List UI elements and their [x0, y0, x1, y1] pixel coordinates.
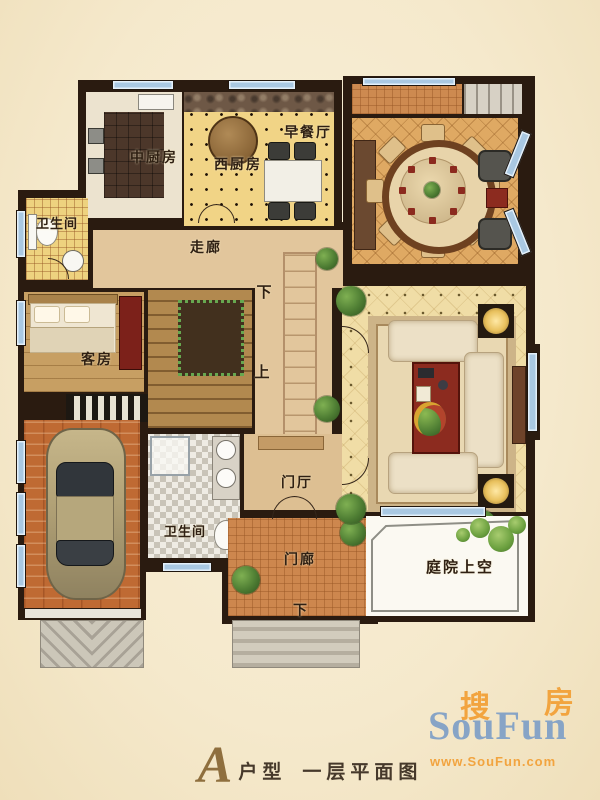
foyer-rug: [258, 436, 324, 450]
lamp-table: [478, 474, 514, 508]
place-setting: [458, 187, 465, 194]
driveway-chevron: [41, 621, 92, 667]
window: [16, 492, 26, 536]
table-item: [416, 386, 431, 402]
flower-bouquet: [414, 402, 446, 436]
plant: [340, 520, 366, 546]
breakfast-chair: [294, 202, 316, 220]
label-guest-room: 客房: [67, 349, 127, 369]
label-stair-down: 下: [252, 281, 276, 302]
place-setting: [450, 208, 457, 215]
car-rear-window: [56, 540, 114, 566]
sink-icon: [216, 468, 236, 488]
shower: [150, 436, 190, 476]
car-windshield: [56, 462, 114, 498]
label-breakfast: 早餐厅: [268, 122, 348, 142]
stair-runner: [178, 300, 244, 376]
plant: [314, 396, 340, 422]
breakfast-chair: [268, 202, 290, 220]
window: [228, 80, 296, 90]
plant: [336, 494, 366, 524]
kitchen-counter: [184, 92, 334, 112]
window: [16, 210, 26, 258]
tree: [456, 528, 470, 542]
place-setting: [408, 208, 415, 215]
window: [380, 506, 486, 517]
tree: [470, 518, 490, 538]
closet-strip: [66, 394, 148, 422]
label-foyer: 门厅: [267, 472, 327, 492]
sofa-right: [464, 352, 504, 468]
driveway-chevron: [92, 621, 143, 667]
centerpiece-plant: [424, 182, 440, 198]
side-table: [486, 188, 508, 208]
sofa-bottom: [388, 452, 478, 494]
window: [362, 77, 456, 86]
floor-plan-page: 中厨房 西厨房 早餐厅 卫生间 走廊 下 上 客房 卫生间 门厅 门廊 下 庭院…: [0, 0, 600, 800]
caption-floor-name: 一层平面图: [302, 757, 422, 784]
window: [16, 544, 26, 588]
stove-icon: [88, 158, 104, 174]
window: [527, 352, 538, 432]
terrace-stairs: [464, 84, 522, 114]
label-western-kitchen: 西厨房: [196, 154, 280, 174]
label-bath-main: 卫生间: [150, 521, 220, 540]
kitchen-sink-icon: [138, 94, 174, 110]
label-stair-up: 上: [250, 361, 274, 382]
garage-door: [24, 608, 142, 619]
label-chinese-kitchen: 中厨房: [112, 147, 196, 167]
label-bath-top: 卫生间: [26, 213, 88, 232]
label-corridor: 走廊: [176, 237, 236, 257]
lamp-table: [478, 304, 514, 338]
pillow: [64, 306, 90, 323]
porch-steps: [232, 620, 360, 668]
place-setting: [399, 187, 406, 194]
label-courtyard: 庭院上空: [405, 556, 515, 577]
car-roof: [56, 496, 114, 542]
place-setting: [408, 166, 415, 173]
table-item: [418, 368, 434, 378]
sink-icon: [216, 440, 236, 460]
driveway: [40, 620, 144, 668]
table-item: [438, 380, 448, 390]
label-porch-down: 下: [289, 600, 311, 620]
window: [16, 440, 26, 484]
place-setting: [429, 217, 436, 224]
plant: [336, 286, 366, 316]
tree: [508, 516, 526, 534]
label-porch: 门廊: [270, 549, 330, 569]
place-setting: [450, 166, 457, 173]
breakfast-chair: [294, 142, 316, 160]
window: [16, 300, 26, 346]
window: [112, 80, 174, 90]
plant: [316, 248, 338, 270]
stove-icon: [88, 128, 104, 144]
plant: [232, 566, 260, 594]
caption-letter: A: [198, 743, 233, 790]
media-cabinet: [512, 366, 526, 444]
logo-text-sou: 搜: [460, 682, 490, 726]
logo-text-fang: 房: [544, 678, 574, 722]
window: [162, 562, 212, 572]
terrace: [352, 84, 462, 114]
place-setting: [429, 157, 436, 164]
pillow: [34, 306, 60, 323]
plan-caption: A 户型 一层平面图: [150, 728, 470, 790]
caption-type: 户型: [238, 757, 286, 784]
